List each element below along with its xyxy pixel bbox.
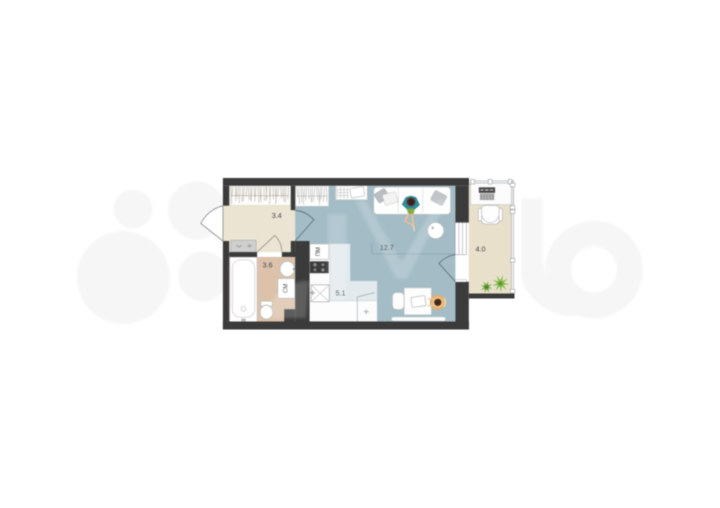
- svg-text:ПМ: ПМ: [316, 247, 322, 256]
- svg-text:3.6: 3.6: [263, 260, 273, 269]
- svg-text:4.0: 4.0: [476, 244, 486, 253]
- svg-text:3.4: 3.4: [272, 211, 282, 220]
